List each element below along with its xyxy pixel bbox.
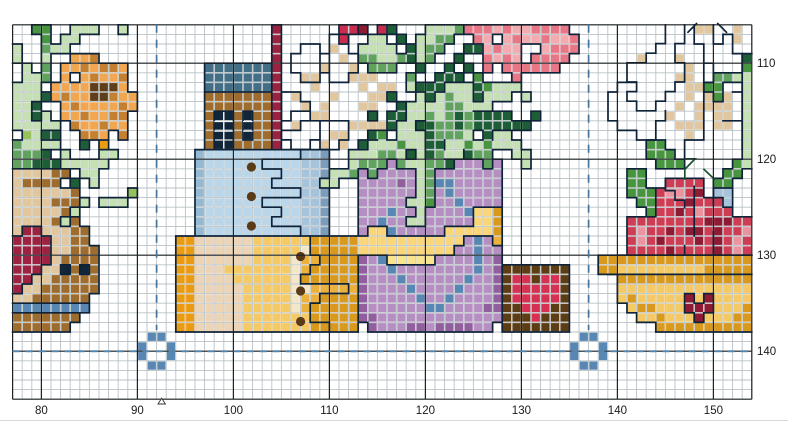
svg-text:150: 150 <box>704 405 723 417</box>
svg-text:130: 130 <box>512 405 531 417</box>
svg-text:120: 120 <box>757 154 776 166</box>
svg-text:140: 140 <box>608 405 627 417</box>
svg-text:120: 120 <box>416 405 435 417</box>
svg-text:80: 80 <box>35 405 48 417</box>
svg-text:110: 110 <box>757 58 775 70</box>
svg-text:110: 110 <box>320 405 338 417</box>
svg-text:90: 90 <box>131 405 144 417</box>
svg-text:100: 100 <box>224 405 243 417</box>
svg-text:140: 140 <box>757 346 776 358</box>
svg-text:130: 130 <box>757 250 776 262</box>
